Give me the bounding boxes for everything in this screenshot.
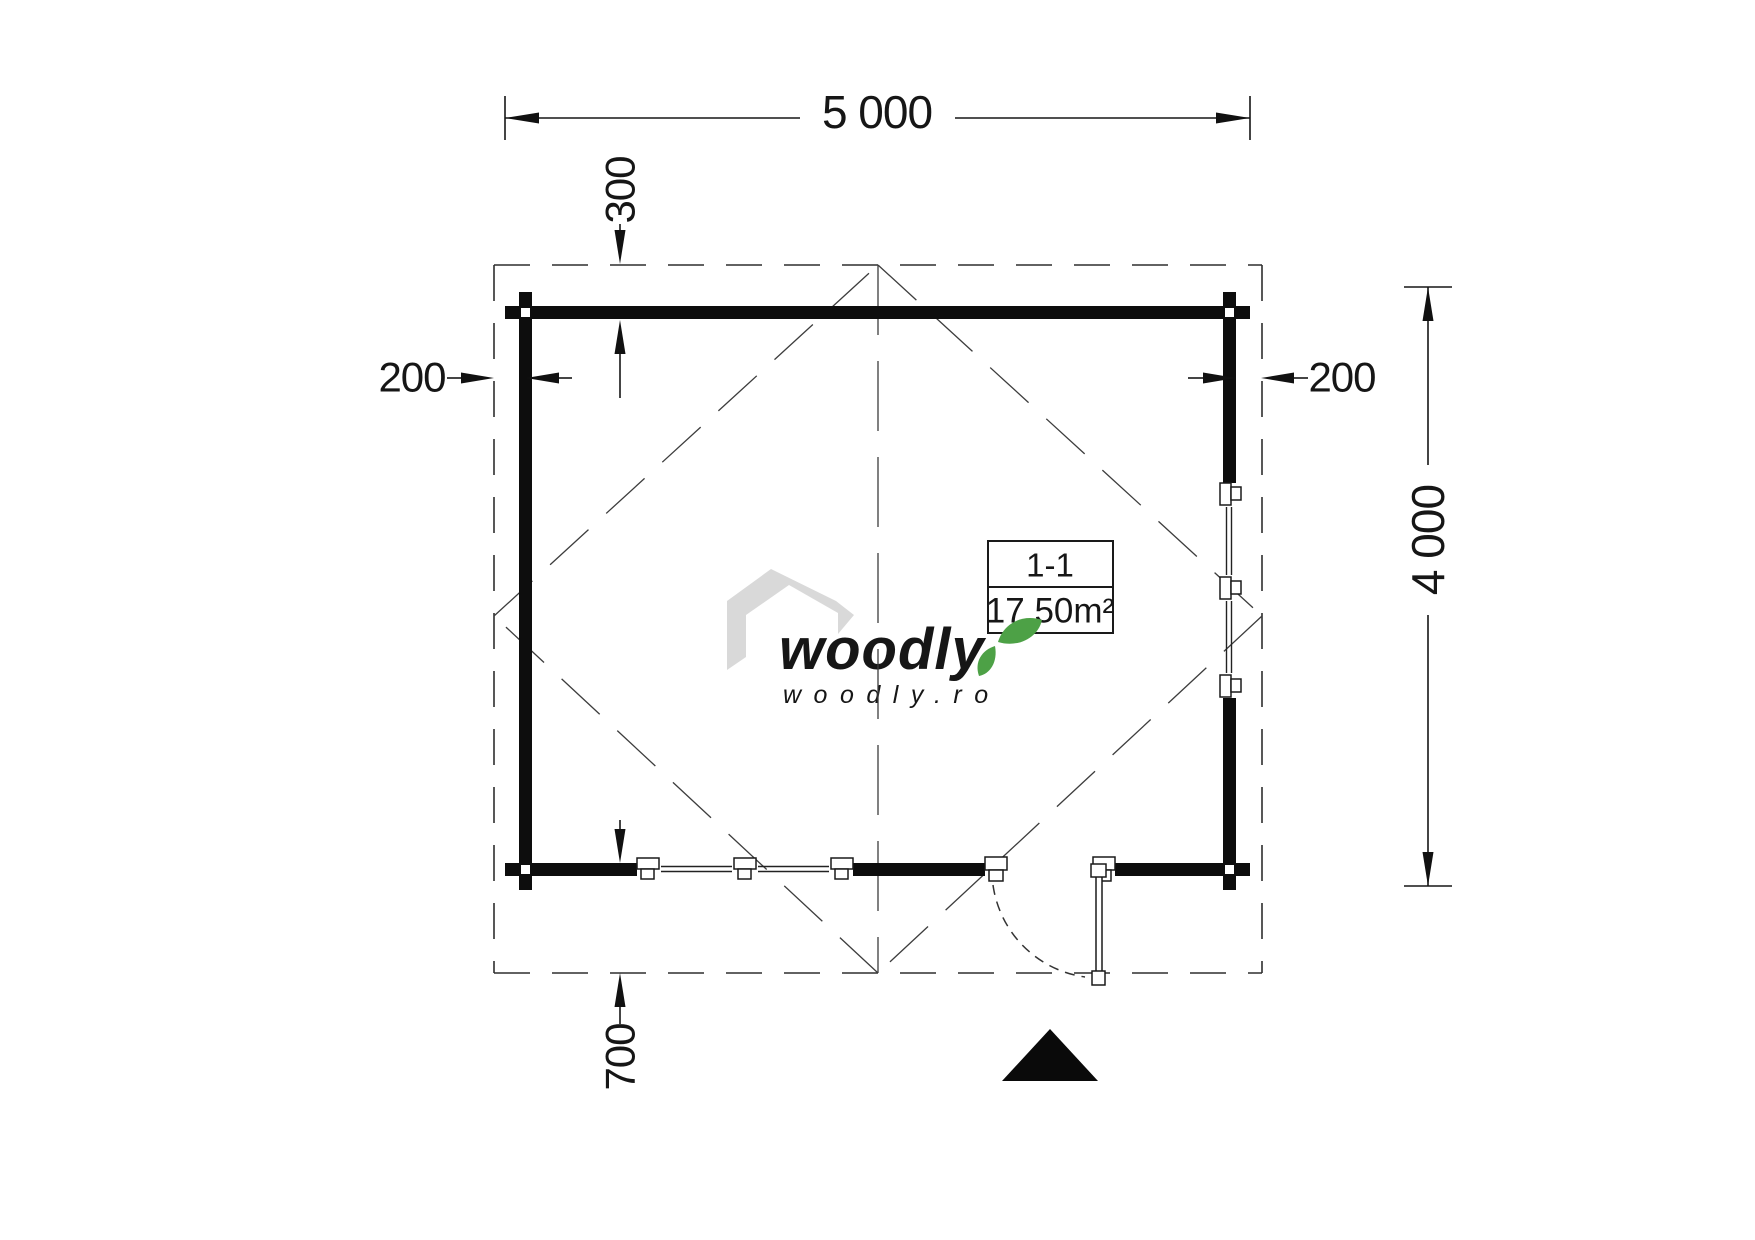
door-frame-left: [985, 857, 1007, 870]
door: [985, 857, 1115, 985]
arrowhead-up-icon: [615, 320, 626, 354]
door-leaf: [1096, 868, 1102, 978]
room-label-box: 1-1 17.50m²: [986, 541, 1114, 633]
logo-site-text: woodly.ro: [783, 681, 1001, 709]
dimension-height-label: 4 000: [1402, 485, 1454, 595]
arrowhead-up-icon: [1423, 287, 1434, 321]
arrowhead-left-icon: [505, 113, 539, 124]
wall-left: [519, 292, 532, 890]
dimension-height: 4 000: [1402, 287, 1454, 886]
dimension-right-offset-label: 200: [1308, 354, 1375, 401]
room-area-label: 17.50m²: [986, 592, 1114, 631]
dimension-left-offset: 200: [378, 354, 572, 401]
wall-right-lower-segment: [1223, 698, 1236, 890]
arrowhead-down-icon: [615, 230, 626, 264]
door-swing-arc: [993, 885, 1085, 977]
wall-right-upper-segment: [1223, 292, 1236, 483]
arrowhead-down-icon: [615, 829, 626, 863]
arrowhead-down-icon: [1423, 852, 1434, 886]
dimension-bottom-offset-label: 700: [597, 1023, 644, 1090]
wall-top: [505, 306, 1250, 319]
window-right: [1220, 483, 1241, 697]
dimension-right-offset: 200: [1188, 354, 1376, 401]
entrance-marker-icon: [1002, 1029, 1098, 1081]
logo-brand-text: woodly: [779, 617, 987, 682]
dimension-width-label: 5 000: [822, 86, 932, 138]
arrowhead-up-icon: [615, 973, 626, 1007]
dimension-left-offset-label: 200: [378, 354, 445, 401]
wall-bottom-mid-segment: [853, 863, 985, 876]
room-section-label: 1-1: [1026, 547, 1074, 584]
dimension-top-offset: 300: [597, 156, 644, 398]
dimension-width: 5 000: [505, 86, 1250, 140]
arrowhead-right-icon: [1216, 113, 1250, 124]
dimension-top-offset-label: 300: [597, 156, 644, 223]
floor-plan-page: woodly woodly.ro: [0, 0, 1755, 1240]
logo: woodly woodly.ro: [727, 569, 1001, 709]
arrowhead-left-icon: [1261, 373, 1294, 384]
arrowhead-right-icon: [461, 373, 494, 384]
window-bottom: [637, 858, 853, 879]
floor-plan-canvas: woodly woodly.ro: [0, 0, 1755, 1240]
